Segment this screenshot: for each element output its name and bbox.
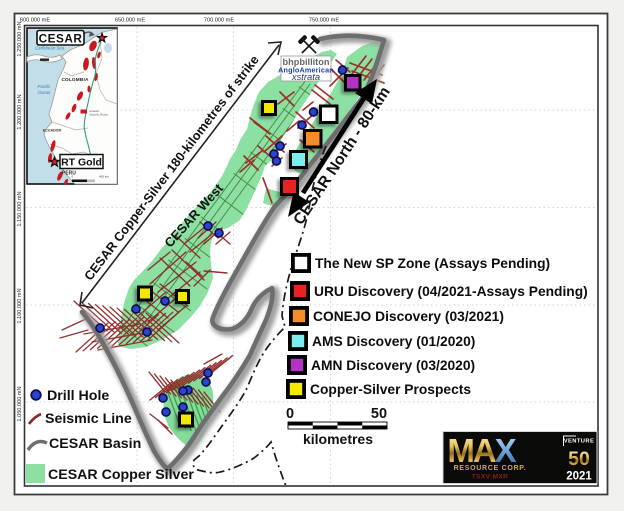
- svg-text:VENTURE: VENTURE: [564, 439, 595, 445]
- svg-text:Caribbean Sea: Caribbean Sea: [35, 46, 65, 51]
- svg-text:Copper-Silver Prospects: Copper-Silver Prospects: [310, 382, 471, 397]
- svg-text:CESAR: CESAR: [39, 31, 83, 45]
- svg-text:COLOMBIA: COLOMBIA: [61, 77, 89, 82]
- svg-text:PERU: PERU: [62, 171, 76, 177]
- svg-text:1.250.000 mN: 1.250.000 mN: [17, 21, 23, 56]
- svg-text:CONEJO Discovery (03/2021): CONEJO Discovery (03/2021): [313, 309, 504, 324]
- svg-text:xstrata: xstrata: [291, 71, 320, 82]
- svg-text:CESAR Copper Silver: CESAR Copper Silver: [48, 467, 194, 483]
- svg-text:AMS Discovery (01/2020): AMS Discovery (01/2020): [312, 334, 475, 349]
- svg-text:MAX: MAX: [447, 432, 516, 469]
- svg-text:2021: 2021: [566, 471, 592, 483]
- svg-text:ECUADOR: ECUADOR: [43, 129, 62, 133]
- svg-text:Volcanic Rocks: Volcanic Rocks: [89, 113, 109, 117]
- svg-text:400 km: 400 km: [99, 175, 109, 179]
- svg-text:1.100.000 mN: 1.100.000 mN: [17, 288, 23, 323]
- svg-text:RESOURCE CORP.: RESOURCE CORP.: [454, 465, 527, 472]
- svg-text:The New SP Zone (Assays Pendin: The New SP Zone (Assays Pending): [315, 256, 550, 271]
- svg-text:1.200.000 mN: 1.200.000 mN: [17, 94, 23, 129]
- svg-text:700.000 mE: 700.000 mE: [204, 18, 234, 24]
- svg-text:Seismic Line: Seismic Line: [45, 411, 132, 427]
- svg-text:650.000 mE: 650.000 mE: [115, 18, 145, 24]
- svg-text:600.000 mE: 600.000 mE: [20, 18, 50, 24]
- svg-text:AMN Discovery (03/2020): AMN Discovery (03/2020): [311, 358, 475, 373]
- svg-text:0: 0: [286, 406, 294, 422]
- svg-text:URU Discovery (04/2021-Assays: URU Discovery (04/2021-Assays Pending): [314, 284, 588, 299]
- svg-text:1.050.000 mN: 1.050.000 mN: [17, 386, 23, 421]
- svg-text:TSXV:MXR: TSXV:MXR: [472, 474, 508, 481]
- svg-text:750.000 mE: 750.000 mE: [309, 18, 339, 24]
- svg-text:Pacific: Pacific: [38, 84, 52, 89]
- svg-text:Drill Hole: Drill Hole: [47, 388, 109, 404]
- svg-text:50: 50: [371, 406, 387, 422]
- svg-text:RT Gold: RT Gold: [61, 157, 102, 169]
- svg-text:kilometres: kilometres: [303, 431, 373, 447]
- svg-text:Ocean: Ocean: [38, 90, 51, 95]
- svg-text:1.150.000 mN: 1.150.000 mN: [17, 191, 23, 226]
- svg-text:CESAR Basin: CESAR Basin: [49, 436, 141, 452]
- svg-text:50: 50: [568, 448, 590, 470]
